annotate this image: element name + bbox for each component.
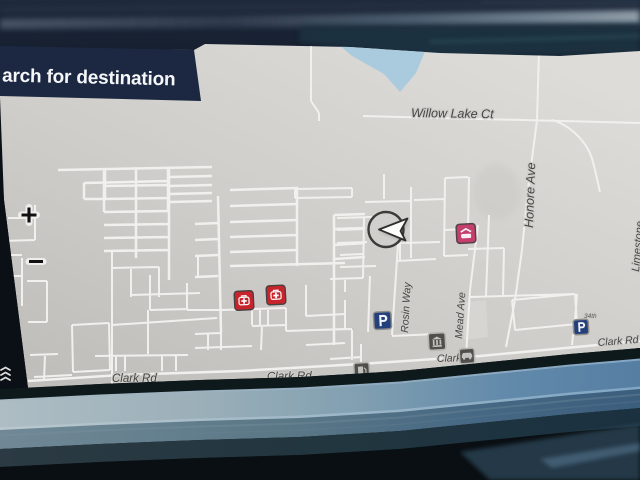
svg-text:Clark: Clark <box>437 352 463 365</box>
svg-text:arch for destination: arch for destination <box>2 66 176 91</box>
svg-text:Willow Lake Ct: Willow Lake Ct <box>411 106 494 121</box>
svg-text:Honore Ave: Honore Ave <box>522 162 538 228</box>
